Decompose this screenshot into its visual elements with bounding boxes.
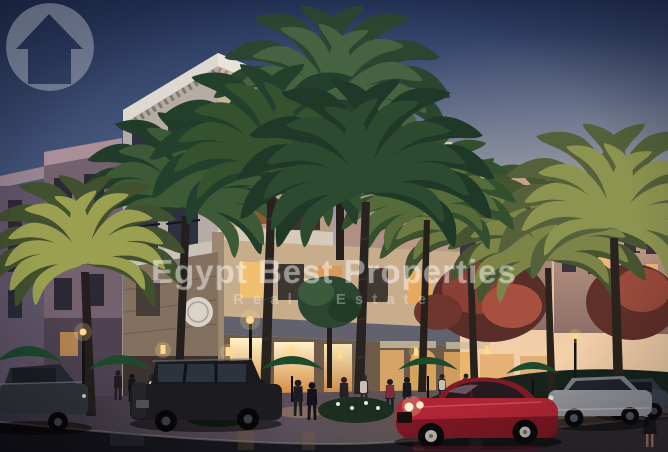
watermark-logo: [0, 0, 100, 100]
vignette: [0, 0, 668, 452]
house-circle-icon: [6, 3, 94, 91]
real-estate-photo: Egypt Best Properties Real Estate: [0, 0, 668, 452]
watermark-subtitle: Real Estate: [0, 291, 668, 308]
watermark-title: Egypt Best Properties: [0, 253, 668, 291]
scene-canvas: [0, 0, 668, 452]
